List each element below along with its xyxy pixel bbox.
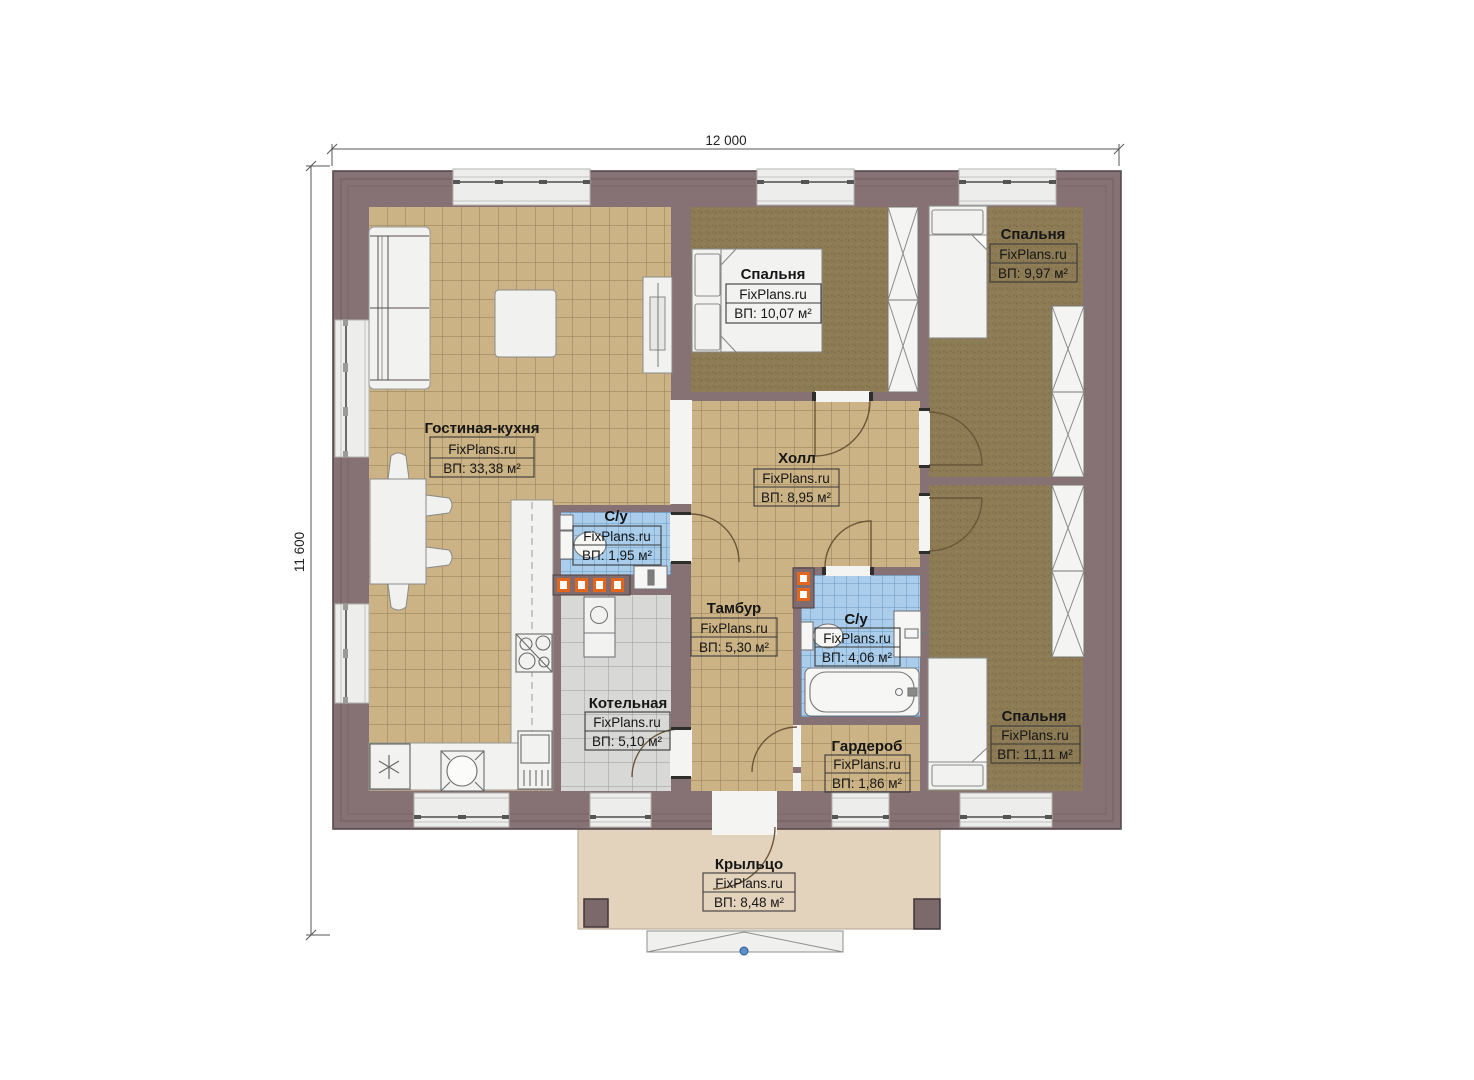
- svg-text:ВП: 10,07 м²: ВП: 10,07 м²: [734, 306, 812, 321]
- svg-text:FixPlans.ru: FixPlans.ru: [583, 529, 651, 544]
- svg-text:ВП: 11,11 м²: ВП: 11,11 м²: [997, 747, 1073, 762]
- svg-text:ВП: 1,95 м²: ВП: 1,95 м²: [582, 548, 653, 563]
- svg-text:Гостиная-кухня: Гостиная-кухня: [425, 420, 540, 437]
- svg-text:ВП: 8,95 м²: ВП: 8,95 м²: [761, 490, 832, 505]
- svg-text:FixPlans.ru: FixPlans.ru: [739, 287, 807, 302]
- svg-text:Тамбур: Тамбур: [707, 600, 761, 617]
- svg-text:Спальня: Спальня: [1002, 708, 1067, 725]
- svg-text:ВП: 1,86 м²: ВП: 1,86 м²: [832, 776, 903, 791]
- svg-text:FixPlans.ru: FixPlans.ru: [448, 442, 516, 457]
- svg-text:FixPlans.ru: FixPlans.ru: [833, 757, 901, 772]
- svg-text:С/у: С/у: [844, 611, 868, 628]
- svg-text:ВП: 4,06 м²: ВП: 4,06 м²: [822, 650, 893, 665]
- svg-text:Холл: Холл: [778, 450, 816, 467]
- svg-text:FixPlans.ru: FixPlans.ru: [762, 471, 830, 486]
- svg-text:ВП: 5,30 м²: ВП: 5,30 м²: [699, 640, 770, 655]
- svg-text:FixPlans.ru: FixPlans.ru: [715, 876, 783, 891]
- svg-text:FixPlans.ru: FixPlans.ru: [700, 621, 768, 636]
- svg-text:Гардероб: Гардероб: [832, 738, 903, 755]
- svg-text:FixPlans.ru: FixPlans.ru: [823, 631, 891, 646]
- svg-text:С/у: С/у: [604, 508, 628, 525]
- svg-text:12 000: 12 000: [705, 133, 746, 148]
- svg-text:Крыльцо: Крыльцо: [715, 856, 783, 873]
- svg-text:ВП: 8,48 м²: ВП: 8,48 м²: [714, 895, 785, 910]
- svg-text:FixPlans.ru: FixPlans.ru: [593, 715, 661, 730]
- svg-text:FixPlans.ru: FixPlans.ru: [999, 247, 1067, 262]
- svg-text:Спальня: Спальня: [1001, 226, 1066, 243]
- svg-text:11 600: 11 600: [292, 532, 307, 572]
- svg-text:ВП: 5,10 м²: ВП: 5,10 м²: [592, 734, 663, 749]
- svg-text:Котельная: Котельная: [589, 695, 668, 712]
- svg-text:Спальня: Спальня: [741, 266, 806, 283]
- svg-text:ВП: 9,97 м²: ВП: 9,97 м²: [998, 266, 1069, 281]
- svg-text:ВП: 33,38 м²: ВП: 33,38 м²: [443, 461, 521, 476]
- svg-text:FixPlans.ru: FixPlans.ru: [1001, 728, 1069, 743]
